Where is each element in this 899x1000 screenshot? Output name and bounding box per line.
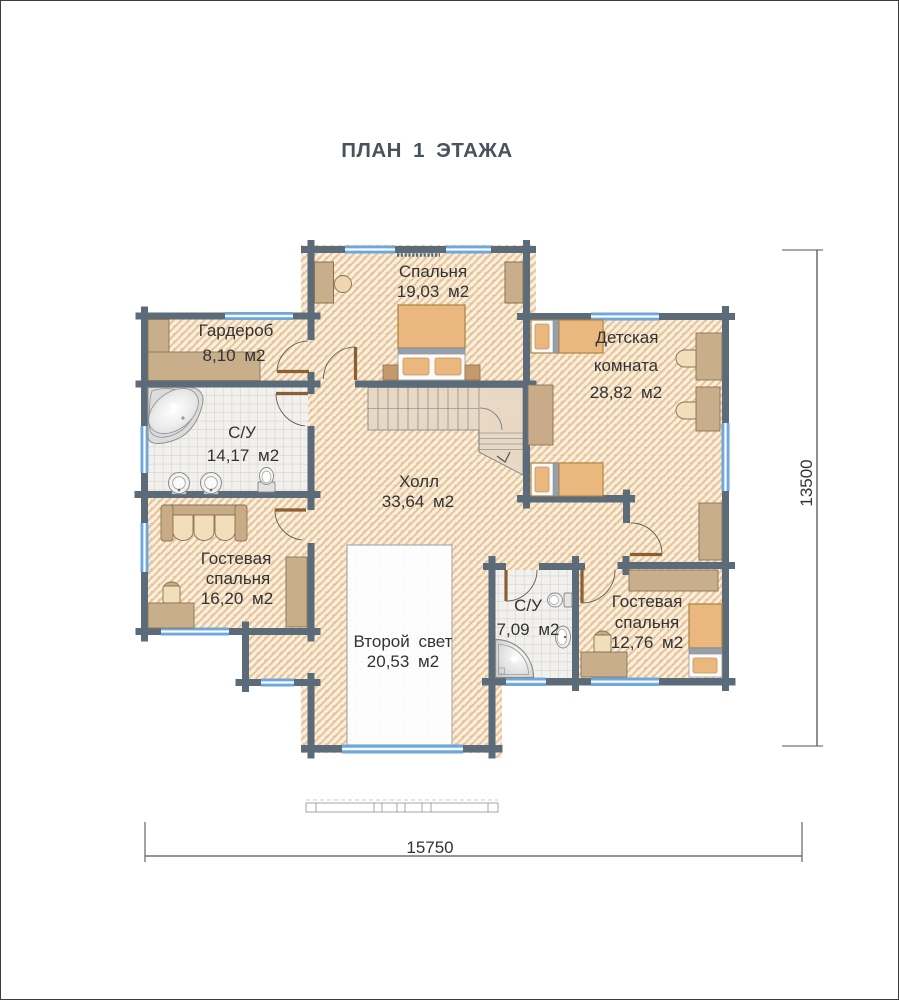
svg-text:Холл: Холл bbox=[399, 472, 439, 491]
svg-text:Второй свет: Второй свет bbox=[354, 632, 453, 651]
svg-text:16,20 м2: 16,20 м2 bbox=[201, 589, 273, 608]
svg-text:Гардероб: Гардероб bbox=[199, 321, 274, 340]
svg-text:13500: 13500 bbox=[797, 459, 816, 506]
svg-text:Спальня: Спальня bbox=[399, 262, 467, 281]
svg-text:Гостевая: Гостевая bbox=[201, 549, 272, 568]
svg-text:15750: 15750 bbox=[406, 838, 453, 857]
svg-text:8,10 м2: 8,10 м2 bbox=[203, 346, 266, 365]
svg-text:ПЛАН 1 ЭТАЖА: ПЛАН 1 ЭТАЖА bbox=[341, 139, 512, 162]
svg-text:28,82 м2: 28,82 м2 bbox=[590, 383, 662, 402]
svg-text:19,03 м2: 19,03 м2 bbox=[397, 282, 469, 301]
svg-text:7,09 м2: 7,09 м2 bbox=[497, 620, 560, 639]
svg-text:спальня: спальня bbox=[206, 569, 271, 588]
svg-text:Детская: Детская bbox=[596, 328, 659, 347]
svg-text:спальня: спальня bbox=[615, 613, 680, 632]
svg-text:12,76 м2: 12,76 м2 bbox=[611, 633, 683, 652]
svg-text:комната: комната bbox=[594, 356, 659, 375]
svg-text:С/У: С/У bbox=[514, 596, 542, 615]
svg-text:С/У: С/У bbox=[228, 423, 256, 442]
svg-text:20,53 м2: 20,53 м2 bbox=[367, 652, 439, 671]
svg-text:Гостевая: Гостевая bbox=[612, 592, 683, 611]
svg-text:14,17 м2: 14,17 м2 bbox=[207, 446, 279, 465]
svg-text:33,64 м2: 33,64 м2 bbox=[382, 492, 454, 511]
